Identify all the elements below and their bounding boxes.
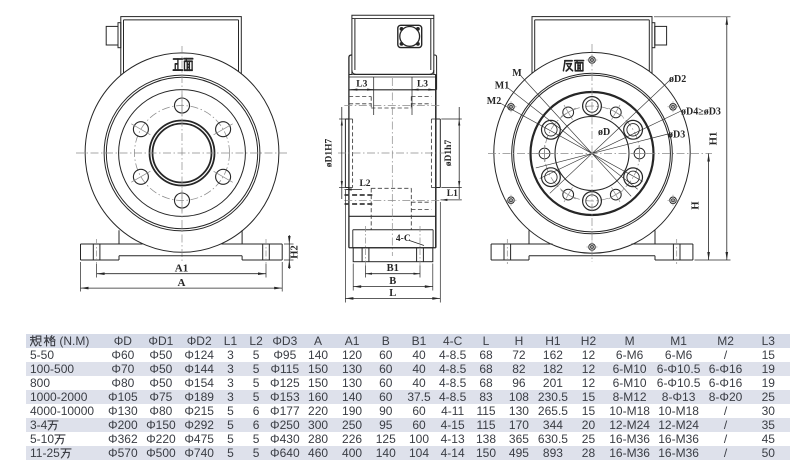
svg-text:M2: M2 <box>487 96 501 107</box>
svg-text:øD: øD <box>598 127 610 138</box>
svg-text:B1: B1 <box>387 263 399 274</box>
svg-text:H1: H1 <box>708 132 719 145</box>
svg-text:A: A <box>178 277 186 289</box>
svg-text:L: L <box>389 288 396 299</box>
svg-text:H: H <box>691 201 702 209</box>
svg-text:H2: H2 <box>290 245 301 258</box>
svg-text:øD3: øD3 <box>668 130 685 141</box>
svg-text:L2: L2 <box>359 179 370 189</box>
svg-text:øD1H7: øD1H7 <box>325 139 335 168</box>
svg-text:B: B <box>389 276 396 287</box>
svg-text:øD1h7: øD1h7 <box>444 140 454 167</box>
svg-text:4-C: 4-C <box>396 234 411 244</box>
svg-text:L1: L1 <box>447 189 458 199</box>
svg-text:M: M <box>512 68 522 79</box>
svg-text:øD4≥øD3: øD4≥øD3 <box>681 107 721 118</box>
svg-text:A1: A1 <box>175 263 188 275</box>
svg-text:øD2: øD2 <box>669 74 686 85</box>
svg-text:L3: L3 <box>417 80 428 90</box>
svg-text:L3: L3 <box>356 80 367 90</box>
svg-text:M1: M1 <box>495 81 509 92</box>
